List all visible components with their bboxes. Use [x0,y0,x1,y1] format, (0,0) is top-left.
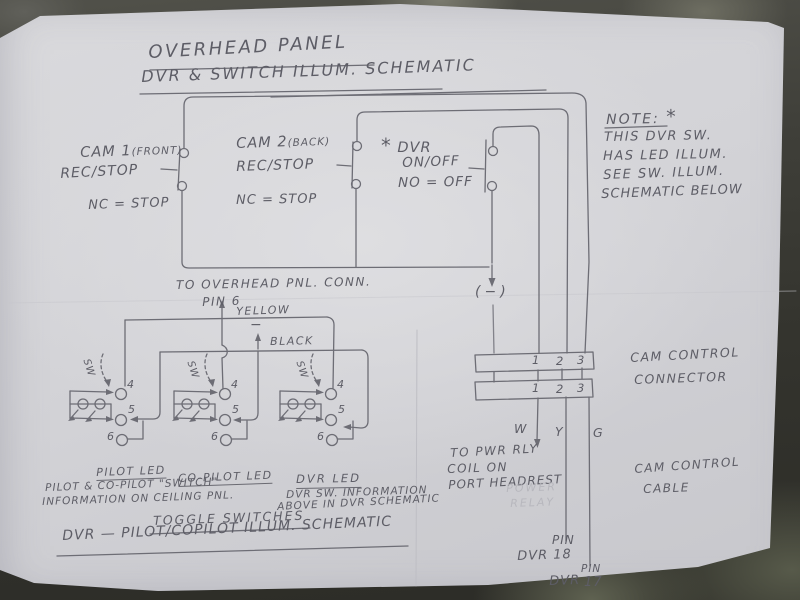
copilot-pin6: 6 [211,431,218,442]
cam2-name: CAM 2 [236,134,288,152]
pin18-label: DVR 18 [517,548,572,563]
pin18-pin-label: PIN [552,534,575,546]
photo-background: OVERHEAD PANEL DVR & SWITCH ILLUM. SCHEM… [0,0,800,600]
dvr-asterisk: * [381,134,392,157]
pin17-num-label: 17 [584,576,603,589]
cam2-variant: (BACK) [287,136,330,149]
connector2-pin3: 3 [577,383,584,395]
cam1-function: REC/STOP [60,163,139,181]
black-wire-label: BLACK [270,335,314,347]
connector2-pin1: 1 [532,383,539,395]
note-asterisk: * [666,106,678,128]
copilot-pin5: 5 [232,404,239,415]
pin17-pin-label: PIN [581,564,601,575]
wire-label-g: G [593,427,604,440]
connector2-pin2: 2 [556,384,563,396]
dvr-contact: NO = OFF [398,176,473,191]
ground-symbol-label: (−) [475,285,510,299]
dvr-label: * DVR [381,136,432,156]
cam2-function: REC/STOP [236,157,314,174]
pencil-linework [0,0,800,600]
minus-symbol: − [250,318,263,332]
dvrled-pin6: 6 [317,431,324,442]
note-line1: THIS DVR SW. [604,129,712,144]
yellow-wire-label: YELLOW [236,304,290,317]
erased-relay-text: RELAY [510,496,555,509]
connector1-pin1: 1 [532,355,539,367]
pilot-pin6: 6 [107,431,114,442]
cam1-name: CAM 1 [80,143,132,161]
cam2-contact: NC = STOP [236,193,317,207]
dvr-function: ON/OFF [402,155,460,170]
cam1-variant: (FRONT) [131,144,182,158]
cam-control-connector-label2: CONNECTOR [634,371,728,387]
illum-bus-wires [125,300,368,430]
dvrled-pin5: 5 [338,404,345,415]
connector1-pin2: 2 [556,356,563,368]
copilot-pin4: 4 [231,379,238,390]
note-heading: NOTE: * [606,108,678,128]
overhead-conn-note: TO OVERHEAD PNL. CONN. [176,276,371,291]
pin17-dvr-label: DVR [549,574,580,588]
dvrled-pin4: 4 [337,379,344,390]
pilot-pin5: 5 [128,404,135,415]
cam-control-cable-label2: CABLE [643,481,690,495]
dvr-switch-symbol [469,140,498,192]
wire-label-y: Y [555,426,564,439]
pwr-rly-note-line2: COIL ON [447,461,508,475]
note-heading-text: NOTE: [606,111,660,128]
erased-power-text: POWER [506,481,557,494]
paper-creases [4,291,796,586]
cam1-contact: NC = STOP [88,196,170,212]
connector1-pin3: 3 [577,355,584,367]
cam2-switch-symbol [337,142,362,189]
pilot-pin4: 4 [127,379,134,390]
wire-label-w: W [514,423,527,436]
note-line2: HAS LED ILLUM. [603,148,728,163]
